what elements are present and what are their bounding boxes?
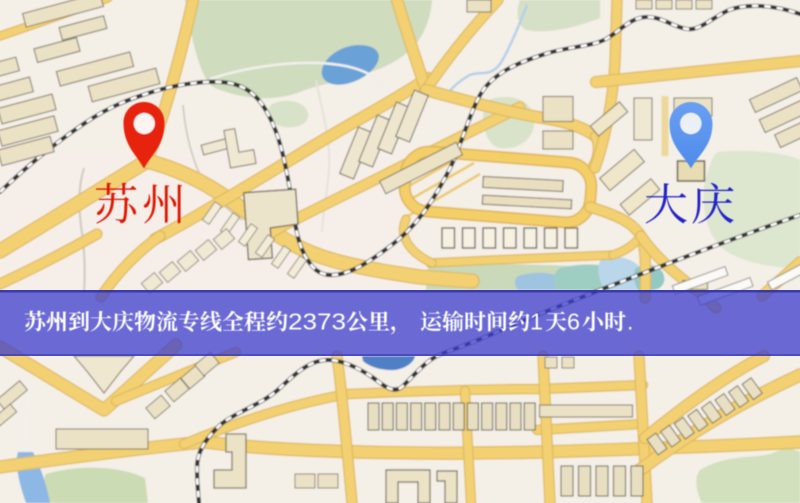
svg-text:.: . [627, 309, 633, 335]
svg-text:1: 1 [530, 309, 543, 335]
svg-text:6: 6 [567, 309, 580, 335]
svg-text:2373: 2373 [288, 309, 346, 335]
